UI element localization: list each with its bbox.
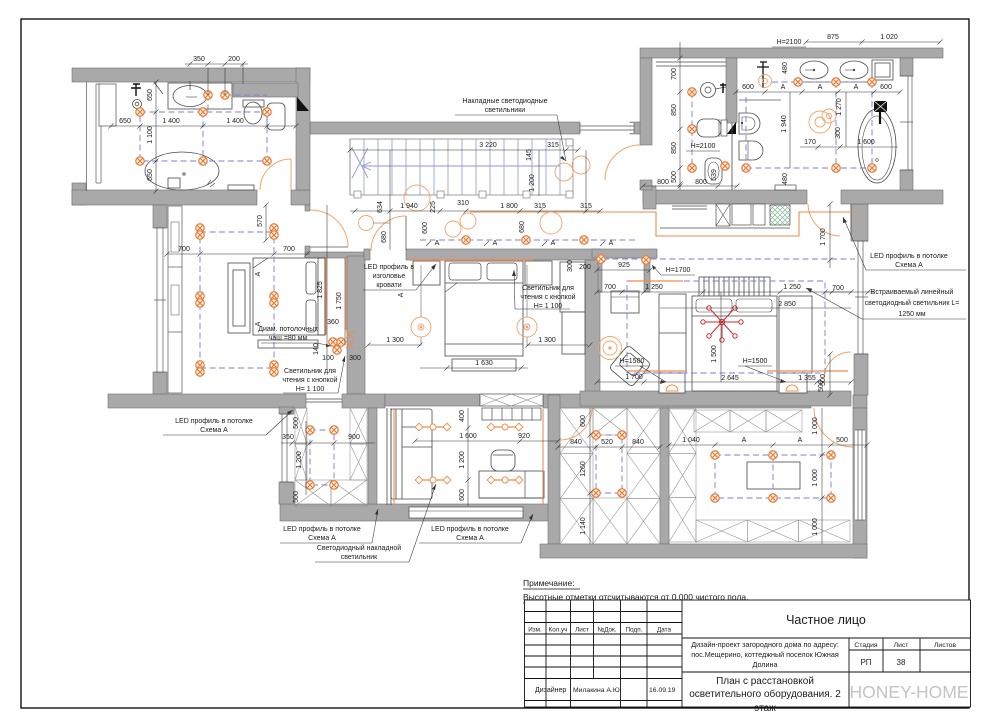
svg-text:A: A — [255, 271, 262, 276]
svg-text:600: 600 — [880, 84, 892, 91]
svg-text:800: 800 — [657, 179, 669, 186]
svg-text:Подп.: Подп. — [626, 627, 643, 634]
svg-text:1 200: 1 200 — [296, 451, 303, 469]
svg-text:1250 мм: 1250 мм — [898, 311, 925, 318]
svg-text:Диам. потолочных: Диам. потолочных — [258, 326, 318, 333]
svg-text:500: 500 — [671, 171, 678, 183]
svg-text:1 300: 1 300 — [386, 337, 404, 344]
svg-text:1 300: 1 300 — [538, 337, 556, 344]
svg-text:РП: РП — [860, 658, 871, 667]
svg-text:500: 500 — [820, 374, 827, 386]
svg-text:Светильник для: Светильник для — [522, 285, 574, 292]
svg-text:1 200: 1 200 — [459, 451, 466, 469]
svg-text:350: 350 — [282, 434, 294, 441]
svg-text:1 040: 1 040 — [682, 437, 700, 444]
svg-text:A: A — [742, 437, 747, 444]
svg-text:500: 500 — [836, 437, 848, 444]
svg-text:680: 680 — [381, 231, 388, 243]
svg-text:светильники: светильники — [485, 107, 525, 114]
svg-text:чаш =80 мм: чаш =80 мм — [269, 335, 308, 342]
svg-text:700: 700 — [178, 246, 190, 253]
svg-text:1 500: 1 500 — [711, 345, 718, 363]
svg-text:светильник: светильник — [341, 554, 378, 561]
svg-text:A: A — [609, 240, 614, 247]
svg-text:H=2100: H=2100 — [691, 143, 716, 150]
svg-text:пос.Мещерино, коттеджный посел: пос.Мещерино, коттеджный поселок Южная — [691, 650, 839, 659]
svg-text:520: 520 — [601, 439, 613, 446]
svg-text:Долина: Долина — [753, 660, 778, 669]
svg-text:1 000: 1 000 — [812, 417, 819, 435]
svg-text:Листов: Листов — [934, 642, 956, 649]
svg-text:570: 570 — [257, 215, 264, 227]
svg-text:634: 634 — [377, 201, 384, 213]
svg-text:светодиодный светильник L=: светодиодный светильник L= — [865, 299, 960, 307]
svg-text:700: 700 — [671, 68, 678, 80]
svg-text:1 000: 1 000 — [812, 469, 819, 487]
svg-text:1 270: 1 270 — [836, 98, 843, 116]
svg-text:LED профиль в потолке: LED профиль в потолке — [431, 526, 509, 533]
svg-text:LED профиль в потолке: LED профиль в потолке — [283, 526, 361, 533]
svg-text:Схема А: Схема А — [895, 262, 923, 269]
svg-text:этаж: этаж — [754, 703, 776, 714]
svg-text:200: 200 — [579, 264, 591, 271]
svg-text:900: 900 — [348, 434, 360, 441]
svg-text:изголовье: изголовье — [373, 273, 406, 280]
svg-text:Встраиваемый линейный: Встраиваемый линейный — [871, 288, 954, 296]
svg-text:850: 850 — [671, 104, 678, 116]
svg-text:600: 600 — [459, 489, 466, 501]
svg-text:600: 600 — [422, 222, 429, 234]
svg-text:Схема А: Схема А — [456, 535, 484, 542]
svg-text:650: 650 — [147, 89, 154, 101]
svg-text:3 220: 3 220 — [479, 142, 497, 149]
svg-text:1 700: 1 700 — [820, 228, 827, 246]
svg-text:925: 925 — [618, 262, 630, 269]
svg-text:480: 480 — [782, 173, 789, 185]
svg-text:650: 650 — [147, 169, 154, 181]
svg-text:1 800: 1 800 — [500, 203, 518, 210]
svg-text:1 630: 1 630 — [475, 360, 493, 367]
svg-text:A: A — [818, 84, 823, 91]
svg-text:350: 350 — [193, 56, 205, 63]
svg-text:Изм.: Изм. — [528, 627, 542, 634]
svg-text:145: 145 — [526, 149, 533, 161]
svg-text:План с расстановкой: План с расстановкой — [716, 676, 814, 687]
svg-text:840: 840 — [632, 439, 644, 446]
svg-text:1 355: 1 355 — [798, 375, 816, 382]
svg-text:Дизайн-проект загородного дома: Дизайн-проект загородного дома по адресу… — [691, 640, 839, 649]
svg-text:200: 200 — [228, 56, 240, 63]
svg-text:2 645: 2 645 — [721, 375, 739, 382]
svg-text:A: A — [854, 84, 859, 91]
svg-text:H=1700: H=1700 — [666, 267, 691, 274]
svg-text:Светодиодный накладной: Светодиодный накладной — [317, 544, 402, 552]
svg-text:Лист: Лист — [575, 627, 589, 634]
svg-text:№Док.: №Док. — [597, 627, 616, 634]
svg-text:500: 500 — [293, 417, 300, 429]
svg-text:600: 600 — [580, 415, 587, 427]
svg-text:100: 100 — [322, 355, 334, 362]
svg-text:осветительного оборудования. 2: осветительного оборудования. 2 — [689, 688, 841, 700]
svg-text:LED профиль в потолке: LED профиль в потолке — [175, 418, 253, 425]
svg-text:500: 500 — [293, 491, 300, 503]
svg-text:чтения с кнопкой: чтения с кнопкой — [282, 376, 337, 384]
svg-text:700: 700 — [283, 246, 295, 253]
svg-text:Кол.уч: Кол.уч — [549, 627, 568, 634]
svg-text:1 000: 1 000 — [812, 518, 819, 536]
svg-text:539: 539 — [711, 169, 718, 181]
svg-text:1 600: 1 600 — [857, 139, 875, 146]
svg-text:315: 315 — [534, 203, 546, 210]
svg-text:LED профиль в: LED профиль в — [364, 264, 414, 271]
svg-text:1 940: 1 940 — [400, 203, 418, 210]
svg-text:875: 875 — [827, 34, 839, 41]
svg-text:LED профиль в потолке: LED профиль в потолке — [870, 253, 948, 260]
svg-text:Дизайнер: Дизайнер — [535, 686, 566, 694]
svg-text:1 825: 1 825 — [317, 281, 324, 299]
svg-text:700: 700 — [604, 284, 616, 291]
svg-text:Стадия: Стадия — [854, 642, 877, 649]
svg-text:360: 360 — [327, 319, 339, 326]
svg-text:400: 400 — [459, 410, 466, 422]
svg-text:1 020: 1 020 — [880, 34, 898, 41]
svg-text:1 140: 1 140 — [580, 517, 587, 535]
svg-text:Лист: Лист — [894, 642, 909, 649]
svg-text:315: 315 — [547, 142, 559, 149]
svg-text:H= 1 100: H= 1 100 — [296, 386, 325, 393]
svg-text:300: 300 — [567, 260, 574, 272]
svg-text:225: 225 — [430, 201, 437, 213]
svg-text:A: A — [493, 240, 498, 247]
svg-text:A: A — [781, 84, 786, 91]
svg-text:700: 700 — [832, 285, 844, 292]
svg-text:600: 600 — [742, 84, 754, 91]
svg-text:310: 310 — [457, 200, 469, 207]
svg-text:920: 920 — [518, 433, 530, 440]
svg-text:Частное лицо: Частное лицо — [786, 613, 866, 627]
svg-text:Схема А: Схема А — [308, 535, 336, 542]
svg-text:Примечание:: Примечание: — [523, 578, 575, 588]
svg-text:кровати: кровати — [376, 282, 401, 289]
svg-text:850: 850 — [671, 142, 678, 154]
svg-text:H=1500: H=1500 — [743, 358, 768, 365]
svg-text:Милакина А.Ю: Милакина А.Ю — [573, 687, 620, 694]
svg-text:2 850: 2 850 — [778, 301, 796, 308]
svg-text:1 250: 1 250 — [783, 284, 801, 291]
svg-text:140: 140 — [313, 343, 320, 355]
svg-text:1260: 1260 — [580, 461, 587, 477]
svg-text:170: 170 — [804, 139, 816, 146]
svg-text:1 100: 1 100 — [147, 126, 154, 144]
svg-text:480: 480 — [782, 62, 789, 74]
svg-text:A: A — [551, 240, 556, 247]
svg-text:Дата: Дата — [657, 627, 671, 634]
svg-text:Накладные светодиодные: Накладные светодиодные — [462, 98, 547, 105]
svg-text:H=2100: H=2100 — [777, 39, 802, 46]
svg-text:300: 300 — [349, 355, 361, 362]
svg-text:650: 650 — [119, 118, 131, 125]
svg-text:A: A — [435, 240, 440, 247]
svg-text:1 400: 1 400 — [226, 118, 244, 125]
svg-text:16.09.19: 16.09.19 — [649, 687, 676, 694]
svg-text:1 940: 1 940 — [781, 115, 788, 133]
svg-text:1 700: 1 700 — [625, 374, 643, 381]
svg-text:чтения с кнопкой: чтения с кнопкой — [520, 293, 575, 301]
svg-text:H=1500: H=1500 — [620, 358, 645, 365]
svg-text:Светильник для: Светильник для — [284, 368, 336, 375]
svg-text:A: A — [398, 292, 405, 297]
svg-text:1 400: 1 400 — [162, 118, 180, 125]
svg-text:1 250: 1 250 — [645, 284, 663, 291]
svg-text:680: 680 — [519, 221, 526, 233]
svg-text:1 750: 1 750 — [336, 292, 343, 310]
svg-text:1 200: 1 200 — [529, 174, 536, 192]
svg-text:A: A — [798, 437, 803, 444]
svg-text:HONEY-HOME: HONEY-HOME — [850, 682, 969, 702]
svg-text:Схема А: Схема А — [200, 427, 228, 434]
svg-text:840: 840 — [570, 439, 582, 446]
svg-text:800: 800 — [695, 179, 707, 186]
svg-text:300: 300 — [835, 127, 842, 139]
svg-text:38: 38 — [897, 658, 906, 667]
